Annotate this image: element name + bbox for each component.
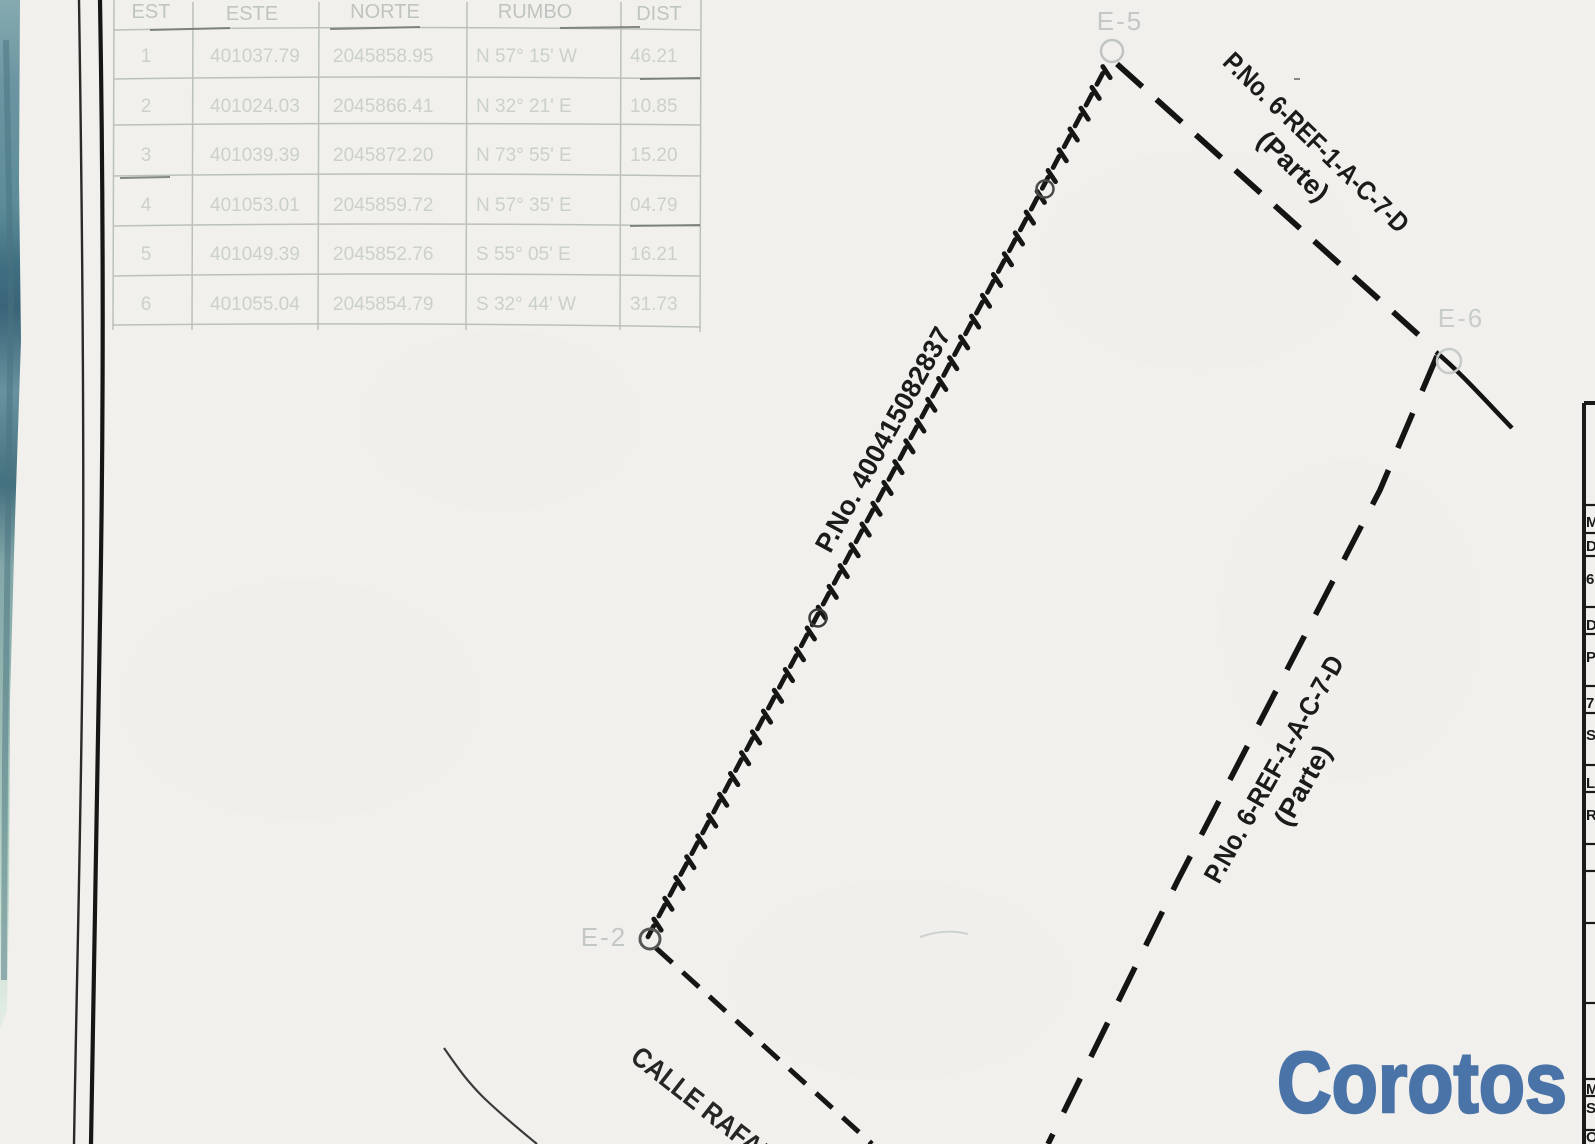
svg-text:DIST: DIST xyxy=(636,3,682,25)
svg-text:L: L xyxy=(1586,775,1595,792)
svg-text:2045858.95: 2045858.95 xyxy=(333,46,433,67)
svg-text:2045866.41: 2045866.41 xyxy=(333,96,433,117)
svg-text:Corotos: Corotos xyxy=(1277,1035,1567,1131)
svg-text:N 32° 21' E: N 32° 21' E xyxy=(476,96,572,117)
svg-text:401037.79: 401037.79 xyxy=(210,46,300,67)
svg-text:EST: EST xyxy=(132,1,171,23)
svg-text:ESTE: ESTE xyxy=(226,3,278,25)
svg-text:2: 2 xyxy=(141,96,152,117)
svg-text:S: S xyxy=(1586,727,1595,744)
svg-text:3: 3 xyxy=(141,145,152,166)
svg-text:N 73° 55' E: N 73° 55' E xyxy=(476,145,572,166)
svg-text:04.79: 04.79 xyxy=(630,195,678,216)
svg-text:M: M xyxy=(1586,514,1595,531)
svg-text:N 57° 35' E: N 57° 35' E xyxy=(476,195,572,216)
svg-text:O: O xyxy=(1586,1129,1595,1144)
svg-text:4: 4 xyxy=(141,195,152,216)
svg-text:S 32° 44' W: S 32° 44' W xyxy=(476,294,576,315)
svg-text:E-2: E-2 xyxy=(581,922,627,952)
svg-text:RUMBO: RUMBO xyxy=(498,1,572,23)
svg-text:6: 6 xyxy=(1586,571,1594,588)
svg-text:7: 7 xyxy=(1586,695,1594,712)
svg-text:E-5: E-5 xyxy=(1097,6,1143,36)
svg-text:2045852.76: 2045852.76 xyxy=(333,244,433,265)
svg-text:46.21: 46.21 xyxy=(630,46,678,67)
svg-text:M: M xyxy=(1586,1081,1595,1098)
svg-text:D: D xyxy=(1586,617,1595,634)
svg-text:401024.03: 401024.03 xyxy=(210,96,300,117)
svg-text:2045854.79: 2045854.79 xyxy=(333,294,433,315)
svg-text:NORTE: NORTE xyxy=(350,1,420,23)
svg-text:1: 1 xyxy=(141,46,152,67)
svg-text:31.73: 31.73 xyxy=(630,294,678,315)
svg-text:401049.39: 401049.39 xyxy=(210,244,300,265)
svg-text:S 55° 05' E: S 55° 05' E xyxy=(476,244,571,265)
svg-text:401055.04: 401055.04 xyxy=(210,294,300,315)
svg-text:P: P xyxy=(1586,649,1595,666)
svg-text:D: D xyxy=(1586,538,1595,555)
svg-text:S: S xyxy=(1586,1100,1595,1117)
svg-text:16.21: 16.21 xyxy=(630,244,678,265)
svg-text:2045872.20: 2045872.20 xyxy=(333,145,433,166)
svg-text:R: R xyxy=(1586,807,1595,824)
svg-text:E-6: E-6 xyxy=(1438,303,1484,333)
svg-text:15.20: 15.20 xyxy=(630,145,678,166)
svg-text:401039.39: 401039.39 xyxy=(210,145,300,166)
svg-text:6: 6 xyxy=(141,294,152,315)
svg-text:5: 5 xyxy=(141,244,152,265)
svg-text:2045859.72: 2045859.72 xyxy=(333,195,433,216)
svg-text:N 57° 15' W: N 57° 15' W xyxy=(476,46,577,67)
svg-text:10.85: 10.85 xyxy=(630,96,678,117)
svg-text:401053.01: 401053.01 xyxy=(210,195,300,216)
